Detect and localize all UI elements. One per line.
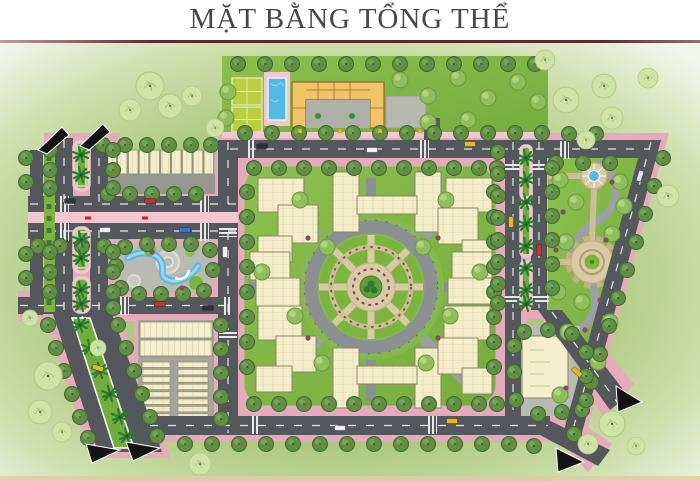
- street-tree: [527, 439, 542, 454]
- street-tree: [448, 437, 463, 452]
- street-tree: [285, 57, 300, 72]
- parking-row: [178, 399, 208, 404]
- street-tree: [167, 187, 182, 202]
- car: [203, 306, 214, 311]
- street-tree: [339, 57, 354, 72]
- street-tree: [319, 126, 334, 141]
- street-tree: [240, 335, 255, 350]
- street-tree: [508, 126, 523, 141]
- park-tree: [220, 84, 236, 100]
- outside-tree: [601, 107, 623, 129]
- master-plan-page: MẶT BẰNG TỔNG THỂ: [0, 0, 700, 481]
- street-tree: [545, 185, 560, 200]
- street-tree: [43, 181, 58, 196]
- outside-tree: [136, 72, 164, 100]
- street-tree: [214, 366, 229, 381]
- street-tree: [106, 143, 121, 158]
- street-tree: [447, 57, 462, 72]
- street-tree: [347, 397, 362, 412]
- street-tree: [106, 245, 121, 260]
- flower-bed: [563, 385, 568, 390]
- street-tree: [232, 437, 247, 452]
- street-tree: [475, 437, 490, 452]
- flower-bed: [603, 237, 608, 242]
- street-tree: [204, 138, 219, 153]
- park-tree: [616, 198, 632, 214]
- street-tree: [297, 161, 312, 176]
- flower-bed: [553, 247, 558, 252]
- street-tree: [214, 342, 229, 357]
- street-tree: [501, 57, 516, 72]
- crosswalk: [219, 228, 237, 237]
- street-tree: [43, 163, 58, 178]
- street-tree: [81, 431, 96, 446]
- car: [257, 144, 268, 149]
- street-tree: [507, 339, 522, 354]
- crosswalk: [222, 297, 231, 315]
- townhouse-unit: [172, 150, 182, 174]
- street-tree: [106, 163, 121, 178]
- street-tree: [240, 185, 255, 200]
- street-tree: [43, 265, 58, 280]
- street-tree: [19, 151, 34, 166]
- park-tree: [392, 72, 408, 88]
- car: [65, 199, 76, 204]
- outside-tree: [657, 185, 679, 207]
- title-rule: [0, 40, 700, 43]
- street-tree: [397, 161, 412, 176]
- street-tree: [65, 387, 80, 402]
- street-tree: [43, 285, 58, 300]
- street-tree: [19, 271, 34, 286]
- parking-row: [142, 377, 170, 382]
- street-tree: [656, 151, 671, 166]
- street-tree: [240, 285, 255, 300]
- car: [155, 302, 166, 307]
- street-tree: [576, 156, 591, 171]
- street-tree: [162, 138, 177, 153]
- street-tree: [123, 187, 138, 202]
- street-tree: [517, 325, 532, 340]
- crosswalk: [420, 140, 429, 158]
- street-tree: [481, 126, 496, 141]
- parking-row: [142, 369, 170, 374]
- flower-bed: [149, 249, 154, 254]
- street-tree: [240, 235, 255, 250]
- walkway-light: [338, 129, 342, 133]
- outside-tree: [578, 434, 598, 454]
- street-tree: [340, 437, 355, 452]
- street-tree: [111, 318, 126, 333]
- street-tree: [490, 397, 505, 412]
- street-tree: [247, 161, 262, 176]
- street-tree: [231, 57, 246, 72]
- street-tree: [184, 138, 199, 153]
- outside-tree: [28, 400, 52, 424]
- outside-tree: [592, 74, 616, 98]
- street-tree: [214, 412, 229, 427]
- street-tree: [214, 318, 229, 333]
- park-tree: [420, 88, 436, 104]
- townhouse-unit: [128, 150, 138, 174]
- car: [509, 217, 514, 228]
- outside-tree: [52, 422, 72, 442]
- street-tree: [487, 360, 502, 375]
- street-tree: [454, 126, 469, 141]
- street-tree: [19, 175, 34, 190]
- outside-tree: [119, 99, 141, 121]
- street-tree: [603, 156, 618, 171]
- street-tree: [214, 390, 229, 405]
- street-tree: [205, 437, 220, 452]
- street-tree: [491, 145, 506, 160]
- street-tree: [297, 397, 312, 412]
- park-tree: [418, 355, 434, 371]
- outside-tree: [90, 340, 106, 356]
- street-tree: [545, 233, 560, 248]
- street-tree: [189, 187, 204, 202]
- crosswalk: [246, 140, 255, 158]
- flower-bed: [609, 179, 614, 184]
- street-tree: [240, 210, 255, 225]
- street-tree: [366, 57, 381, 72]
- street-tree: [545, 281, 560, 296]
- outside-tree: [599, 411, 625, 437]
- central-plaza: [298, 214, 444, 360]
- townhouse-unit: [139, 150, 149, 174]
- page-title: MẶT BẰNG TỔNG THỂ: [190, 3, 511, 36]
- street-tree: [272, 397, 287, 412]
- outside-tree: [182, 86, 202, 106]
- crosswalk: [120, 297, 129, 315]
- street-tree: [43, 245, 58, 260]
- street-tree: [197, 284, 212, 299]
- street-tree: [638, 207, 653, 222]
- townhouse-unit: [182, 150, 192, 174]
- street-tree: [472, 397, 487, 412]
- townhouse-unit: [150, 150, 160, 174]
- car: [447, 419, 458, 424]
- park-tree: [287, 308, 303, 324]
- street-tree: [541, 323, 556, 338]
- street-tree: [491, 189, 506, 204]
- street-tree: [132, 287, 147, 302]
- flower-bed: [582, 327, 587, 332]
- street-tree: [19, 247, 34, 262]
- street-tree: [247, 397, 262, 412]
- outside-tree: [627, 437, 645, 455]
- townhouse-unit: [161, 150, 171, 174]
- outside-tree: [577, 131, 595, 149]
- street-tree: [162, 237, 177, 252]
- street-tree: [447, 397, 462, 412]
- walkway-light: [418, 129, 422, 133]
- road-far-west: [30, 150, 43, 315]
- park-tree: [442, 308, 458, 324]
- street-tree: [491, 255, 506, 270]
- street-tree: [535, 126, 550, 141]
- walkway-light: [298, 129, 302, 133]
- street-tree: [106, 285, 121, 300]
- street-tree: [203, 243, 218, 258]
- crosswalk: [428, 416, 437, 434]
- street-tree: [447, 161, 462, 176]
- outside-tree: [535, 50, 555, 70]
- street-tree: [272, 161, 287, 176]
- street-tree: [127, 364, 142, 379]
- clubhouse-courtyard: [306, 100, 370, 128]
- park-tree: [574, 294, 590, 310]
- street-tree: [491, 296, 506, 311]
- car: [180, 228, 191, 233]
- street-tree: [579, 393, 594, 408]
- street-tree: [178, 437, 193, 452]
- street-tree: [106, 265, 121, 280]
- street-tree: [487, 335, 502, 350]
- street-tree: [135, 387, 150, 402]
- swimming-pool: [268, 78, 286, 120]
- street-tree: [474, 57, 489, 72]
- street-tree: [347, 161, 362, 176]
- street-tree: [286, 437, 301, 452]
- median-flower-accent: [85, 217, 91, 220]
- crosswalk: [250, 416, 259, 434]
- street-tree: [420, 57, 435, 72]
- flower-bed: [435, 335, 440, 340]
- street-tree: [531, 407, 546, 422]
- outside-tree: [189, 453, 211, 475]
- flower-bed: [560, 209, 565, 214]
- street-tree: [545, 161, 560, 176]
- street-tree: [629, 235, 644, 250]
- park-tree: [292, 192, 308, 208]
- outside-tree: [34, 362, 62, 390]
- park-tree: [254, 264, 270, 280]
- street-tree: [562, 127, 577, 142]
- street-tree: [240, 360, 255, 375]
- street-tree: [565, 327, 580, 342]
- parking-row: [178, 384, 208, 389]
- street-tree: [422, 161, 437, 176]
- car: [335, 426, 346, 431]
- street-tree: [322, 161, 337, 176]
- park-tree: [314, 355, 330, 371]
- street-tree: [184, 237, 199, 252]
- street-tree: [394, 437, 409, 452]
- street-tree: [421, 437, 436, 452]
- street-tree: [509, 393, 524, 408]
- flower-bed: [179, 285, 184, 290]
- street-tree: [602, 319, 617, 334]
- crosswalk: [560, 141, 569, 159]
- outside-tree: [638, 68, 658, 88]
- median-flower-accent: [142, 217, 148, 220]
- park-tree: [472, 264, 488, 280]
- park-tree: [480, 90, 496, 106]
- street-tree: [106, 301, 121, 316]
- street-tree: [422, 397, 437, 412]
- street-tree: [346, 126, 361, 141]
- street-tree: [49, 341, 64, 356]
- street-tree: [150, 429, 165, 444]
- parking-row: [178, 392, 208, 397]
- flower-bed: [305, 235, 310, 240]
- parking-row: [142, 362, 170, 367]
- car: [223, 247, 228, 258]
- street-tree: [106, 181, 121, 196]
- street-tree: [140, 138, 155, 153]
- street-tree: [119, 341, 134, 356]
- street-tree: [41, 318, 56, 333]
- street-tree: [545, 209, 560, 224]
- street-tree: [427, 126, 442, 141]
- walkway-light: [378, 129, 382, 133]
- park-tree: [438, 192, 454, 208]
- parking-row: [178, 362, 208, 367]
- flower-bed: [435, 235, 440, 240]
- street-tree: [372, 161, 387, 176]
- street-tree: [322, 397, 337, 412]
- outside-tree: [22, 310, 38, 326]
- street-tree: [240, 260, 255, 275]
- car: [465, 142, 476, 147]
- park-tree: [568, 194, 584, 210]
- site-plan: [0, 0, 700, 481]
- flower-bed: [305, 335, 310, 340]
- street-tree: [593, 347, 608, 362]
- outside-tree: [206, 119, 224, 137]
- park-tree: [319, 239, 335, 255]
- street-tree: [154, 287, 169, 302]
- street-tree: [491, 233, 506, 248]
- bottom-edge-strip: [0, 476, 700, 481]
- street-tree: [206, 263, 221, 278]
- townhouse-unit: [204, 150, 214, 174]
- car: [100, 228, 111, 233]
- park-tree: [450, 70, 466, 86]
- street-tree: [507, 365, 522, 380]
- street-tree: [143, 410, 158, 425]
- street-tree: [313, 437, 328, 452]
- crosswalk: [200, 223, 209, 241]
- street-tree: [502, 437, 517, 452]
- townhouse-unit: [193, 150, 203, 174]
- street-tree: [265, 126, 280, 141]
- street-tree: [312, 57, 327, 72]
- street-tree: [579, 345, 594, 360]
- street-tree: [491, 167, 506, 182]
- street-tree: [472, 161, 487, 176]
- park-tree: [415, 239, 431, 255]
- outside-tree: [158, 94, 182, 118]
- street-tree: [259, 437, 274, 452]
- street-tree: [367, 437, 382, 452]
- street-tree: [372, 397, 387, 412]
- car: [537, 245, 542, 256]
- central-block: [240, 162, 500, 410]
- street-tree: [238, 126, 253, 141]
- street-tree: [73, 410, 88, 425]
- street-tree: [258, 57, 273, 72]
- street-tree: [620, 263, 635, 278]
- park-tree: [530, 94, 546, 110]
- street-tree: [611, 291, 626, 306]
- street-tree: [491, 277, 506, 292]
- flower-bed: [597, 297, 602, 302]
- park-tree: [558, 234, 574, 250]
- car: [145, 199, 156, 204]
- plan-header: MẶT BẰNG TỔNG THỂ: [0, 0, 700, 39]
- parking-row: [178, 369, 208, 374]
- park-tree: [510, 74, 526, 90]
- street-tree: [491, 211, 506, 226]
- street-tree: [487, 310, 502, 325]
- outside-tree: [553, 87, 579, 113]
- car: [367, 148, 378, 153]
- street-tree: [140, 237, 155, 252]
- street-tree: [555, 405, 570, 420]
- street-tree: [545, 257, 560, 272]
- street-tree: [240, 310, 255, 325]
- street-tree: [397, 397, 412, 412]
- street-tree: [400, 126, 415, 141]
- street-tree: [393, 57, 408, 72]
- parking-row: [178, 406, 208, 411]
- parking-row: [178, 377, 208, 382]
